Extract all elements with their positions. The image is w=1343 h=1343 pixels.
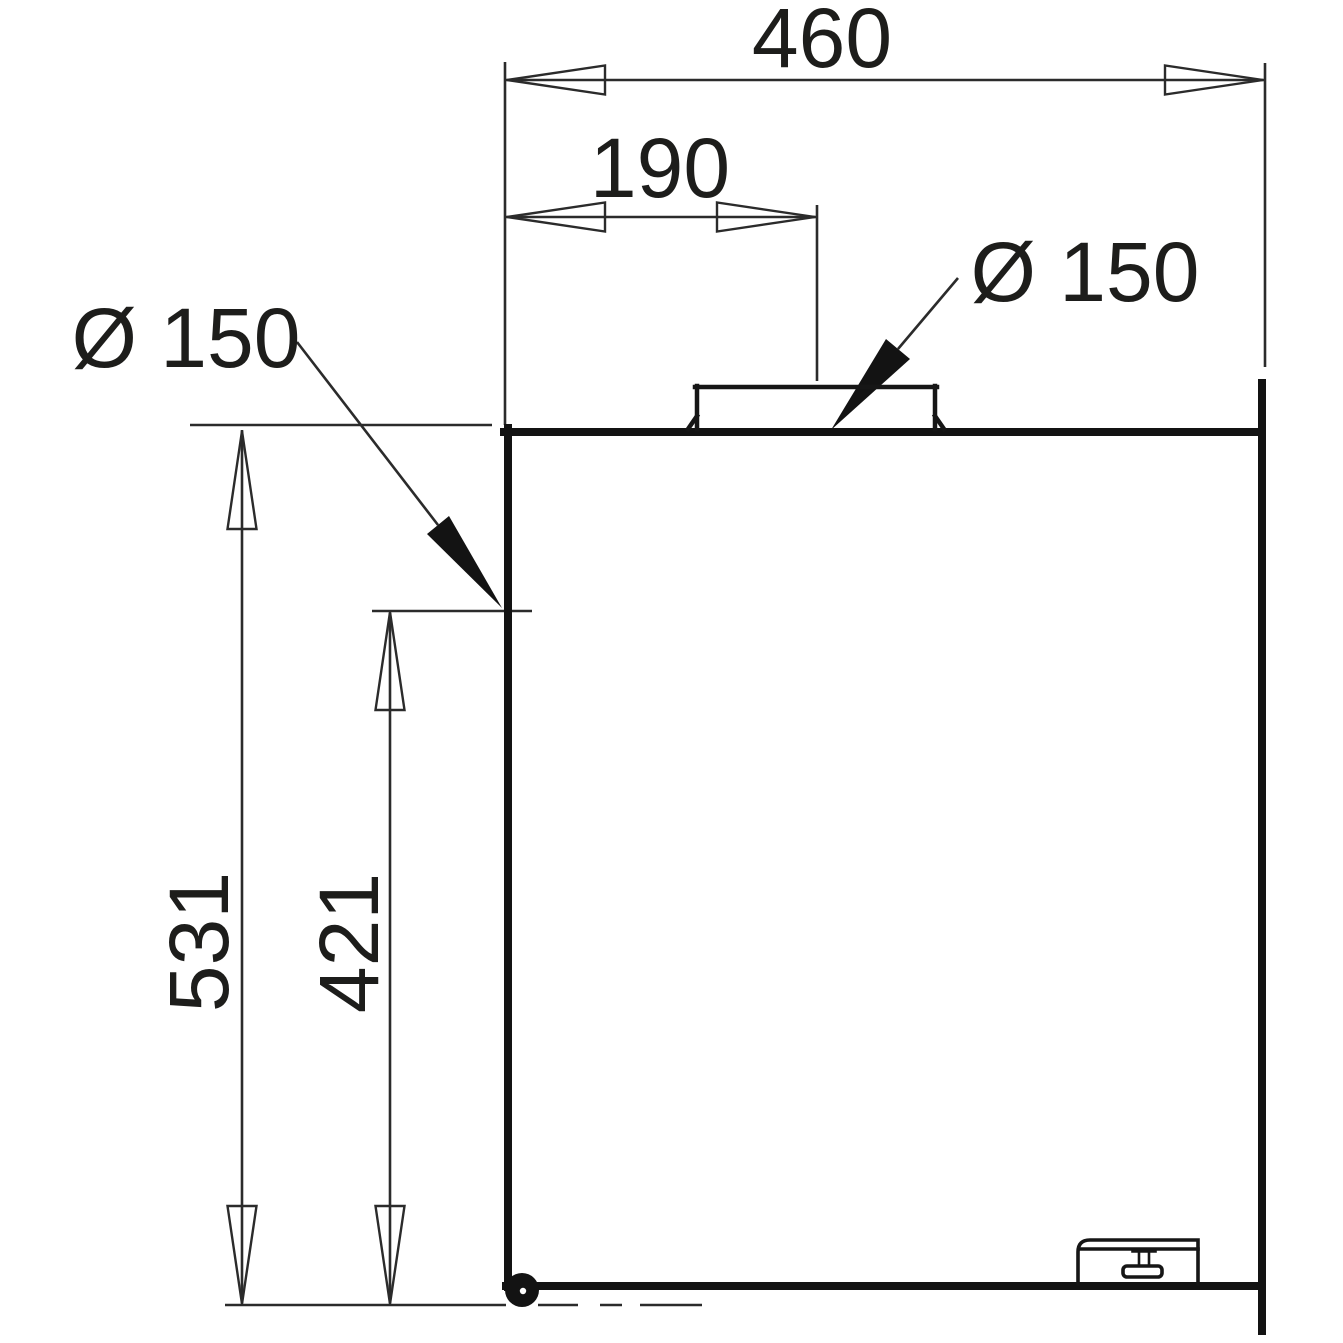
dimension-height-531: 531 bbox=[152, 430, 257, 1304]
dia-label-side: Ø 150 bbox=[72, 291, 301, 385]
dim-label-531: 531 bbox=[152, 872, 246, 1012]
dia-label-top: Ø 150 bbox=[971, 225, 1200, 319]
dimension-drawing: 460 190 531 421 Ø 150 bbox=[0, 0, 1343, 1343]
dimension-height-421: 421 bbox=[302, 612, 405, 1304]
callout-diameter-side: Ø 150 bbox=[72, 291, 502, 608]
roller-center-dot bbox=[520, 1288, 526, 1294]
top-collar bbox=[688, 386, 944, 429]
dimension-offset-190: 190 bbox=[505, 121, 817, 232]
dim-label-460: 460 bbox=[752, 0, 892, 85]
leader-line bbox=[898, 278, 958, 349]
fitting-stem bbox=[1139, 1252, 1149, 1266]
dim-label-421: 421 bbox=[302, 873, 396, 1013]
technical-drawing-canvas: 460 190 531 421 Ø 150 bbox=[0, 0, 1343, 1343]
dim-label-190: 190 bbox=[590, 121, 730, 215]
leader-arrow-icon bbox=[427, 516, 502, 608]
leader-line bbox=[297, 342, 438, 525]
corner-roller bbox=[505, 1273, 539, 1307]
callout-diameter-top: Ø 150 bbox=[831, 225, 1199, 430]
tank-body bbox=[504, 383, 1262, 1331]
bottom-bracket bbox=[1078, 1240, 1198, 1284]
dimension-width-460: 460 bbox=[505, 0, 1265, 95]
leader-arrow-icon bbox=[831, 339, 910, 430]
fitting-base bbox=[1123, 1266, 1162, 1277]
